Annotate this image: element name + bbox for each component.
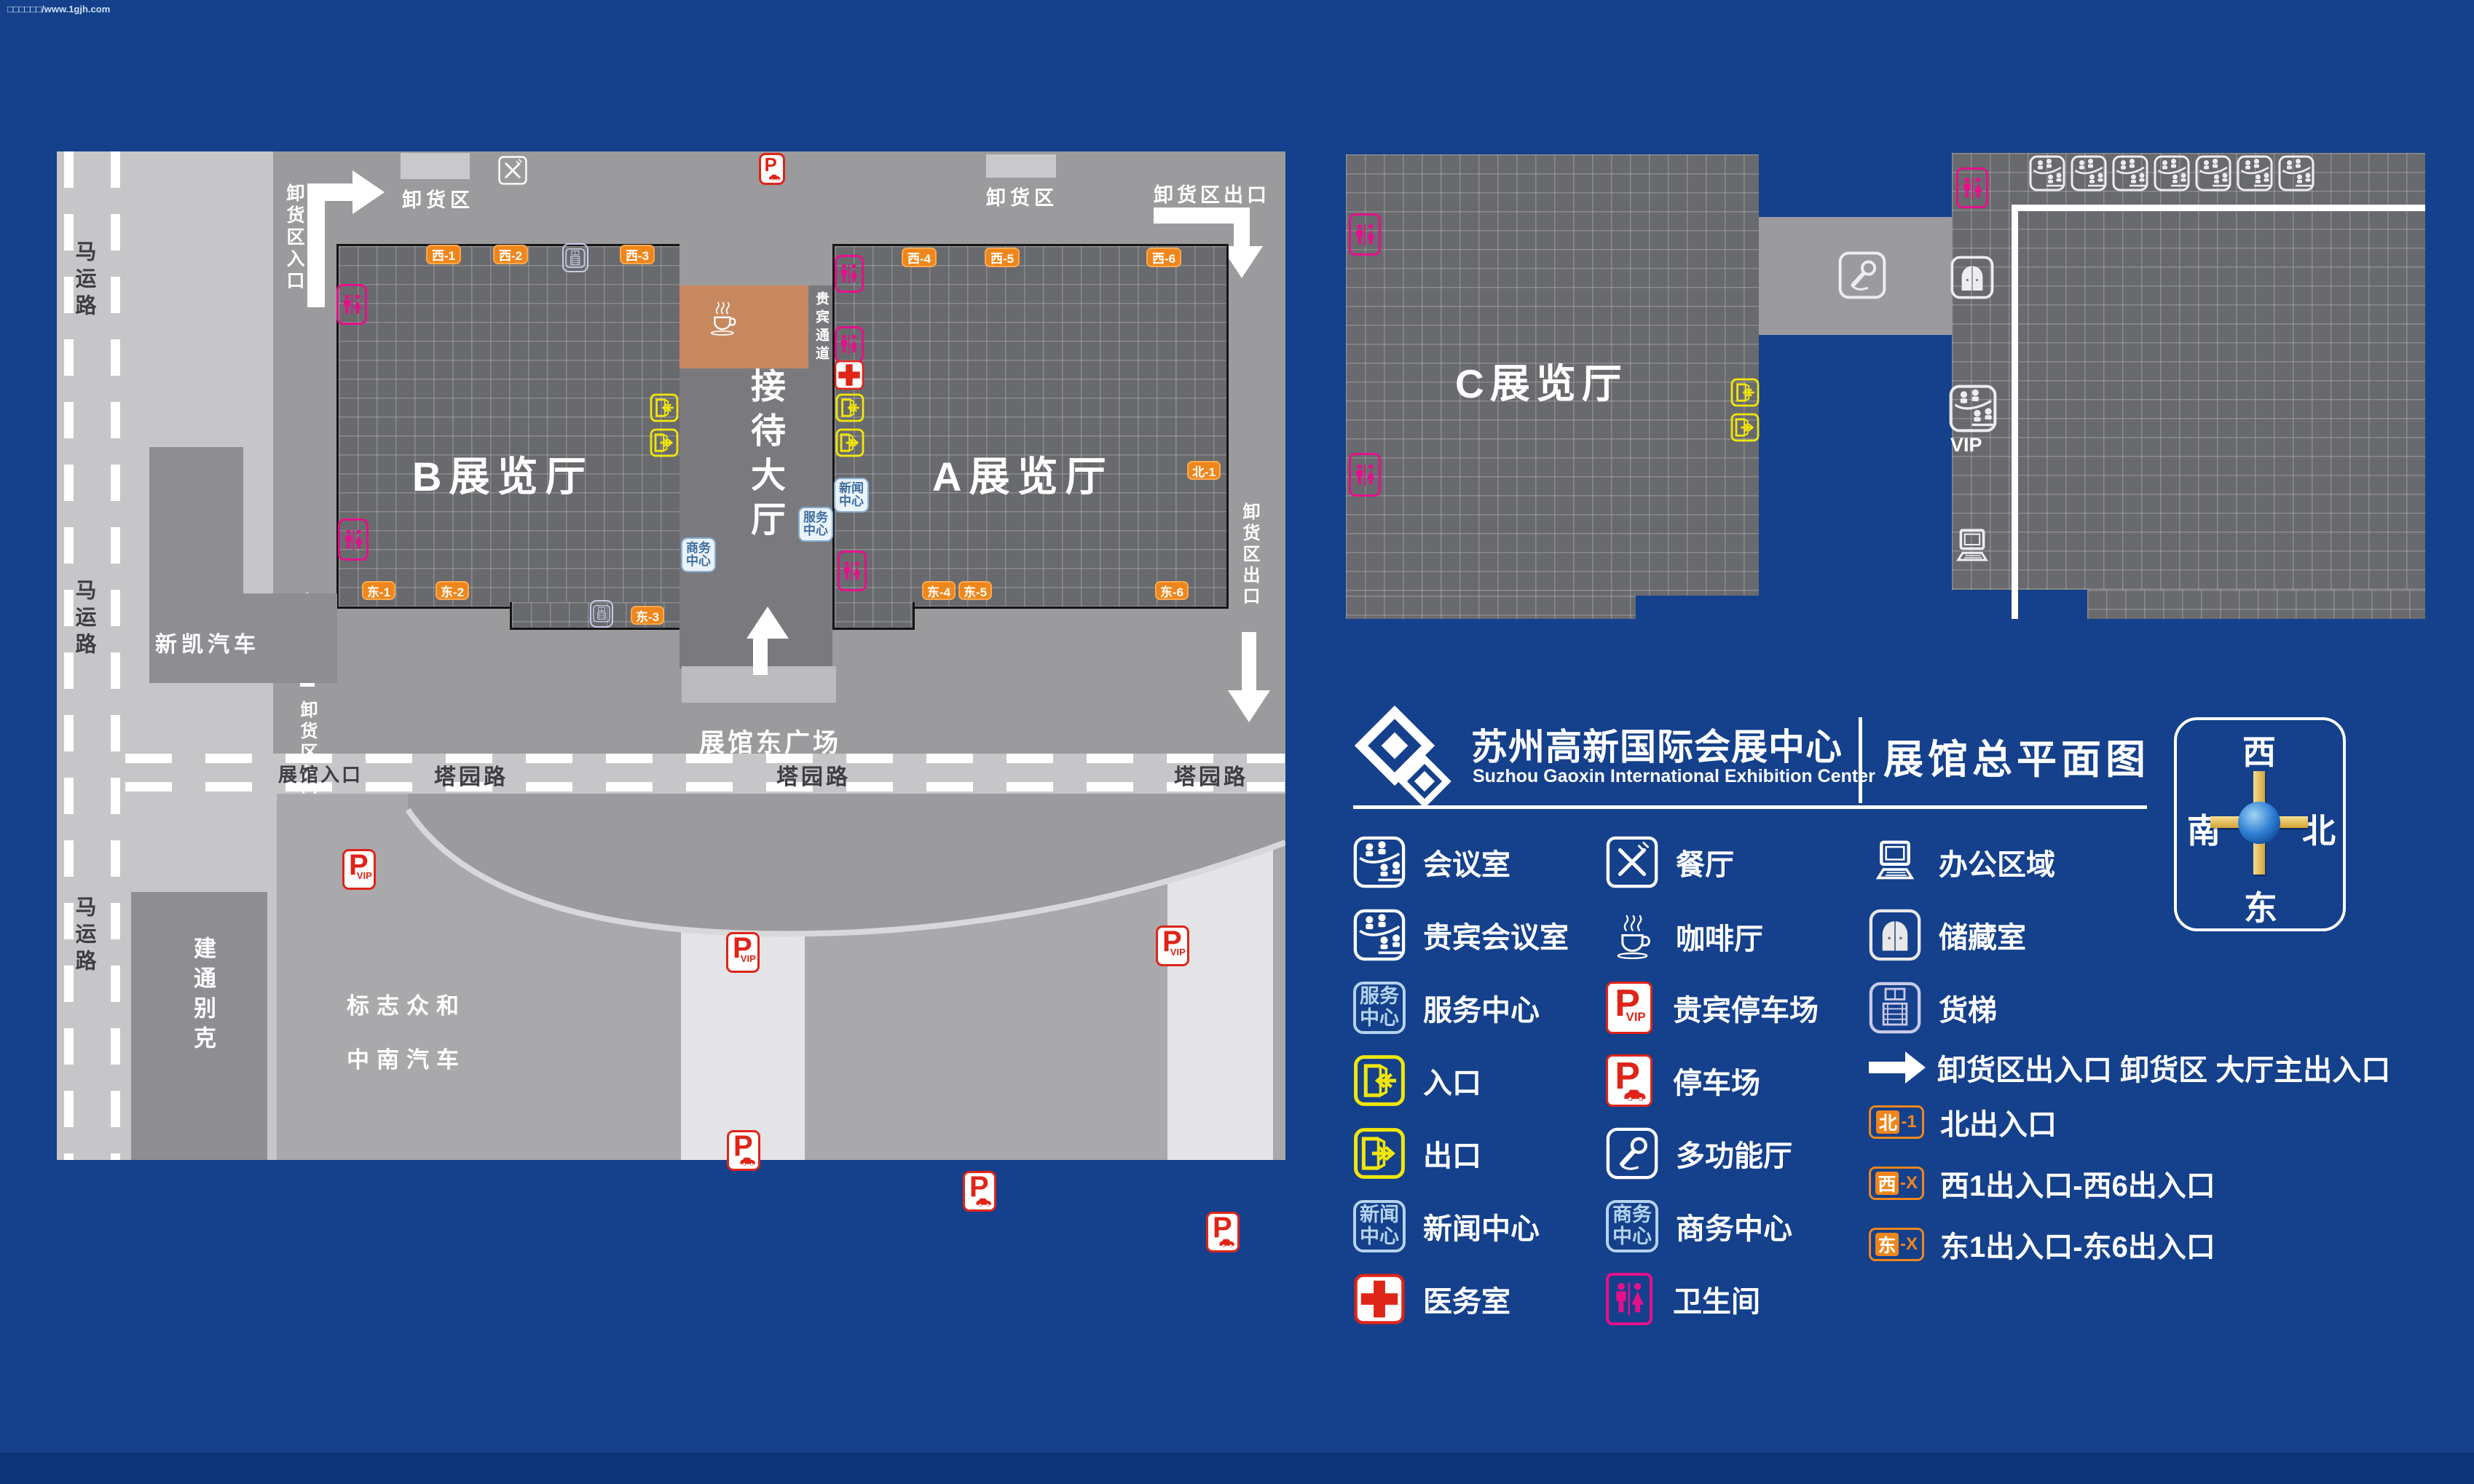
logo (1353, 710, 1459, 818)
vip-passage-label: 贵宾通道 (811, 291, 831, 364)
office-icon (1950, 524, 1994, 569)
conference-icon (2112, 155, 2148, 192)
vip-parking-icon: PVIP (726, 932, 760, 973)
plaza-arrow-head (746, 607, 789, 639)
conference-building-tab (2087, 590, 2425, 619)
legend-item-multifunction: 多功能厅 (1606, 1127, 1792, 1180)
badge-west-4: 西-4 (902, 248, 937, 267)
vip-label: VIP (1950, 434, 1982, 457)
freight-elevator-icon (590, 600, 613, 628)
badge-west-3: 西-3 (620, 245, 655, 264)
legend-item-medical: 医务室 (1353, 1273, 1510, 1325)
compass-west: 西 (2242, 726, 2276, 774)
mayun-road-label: 马运路 (68, 896, 99, 976)
dock-area-label: 卸货区 (986, 182, 1058, 210)
badge-east-1: 东-1 (362, 581, 395, 600)
toilet-icon (1956, 167, 1988, 208)
legend-item-office: 办公区域 (1869, 836, 2055, 888)
mayun-road-dashes (111, 151, 120, 1160)
hall-a-notch (832, 602, 915, 630)
dock-entrance-arrow (307, 183, 325, 307)
legend-item-vip-parking: PVIP 贵宾停车场 (1606, 982, 1819, 1034)
freight-elevator-icon (1869, 982, 1921, 1034)
exit-icon (835, 427, 864, 458)
legend-item-dock-access: 卸货区出入口 卸货区 大厅主出入口 (1869, 1049, 2390, 1086)
vip-parking-icon: PVIP (1606, 982, 1652, 1034)
exit-icon (650, 427, 679, 458)
center-title-en: Suzhou Gaoxin International Exhibition C… (1473, 766, 1875, 787)
legend-item-exit: 出口 (1353, 1127, 1481, 1180)
business-center-icon: 商务中心 (1606, 1200, 1658, 1252)
legend-item-entrance: 入口 (1353, 1054, 1481, 1107)
legend-item-toilet: 卫生间 (1606, 1273, 1760, 1325)
hall-b (336, 244, 686, 609)
toilet-icon (1349, 213, 1381, 256)
dock-exit-arrow-stem (1234, 208, 1250, 250)
compass: 西 南 北 东 (2174, 717, 2346, 931)
tayuan-road-label: 塔园路 (776, 759, 851, 791)
mayun-road-label: 马运路 (68, 240, 99, 321)
legend-item-conference: 会议室 (1353, 836, 1510, 888)
entrance-icon (835, 392, 864, 423)
badge-east-2: 东-2 (436, 581, 469, 600)
badge-east-4: 东-4 (922, 581, 956, 600)
hall-a (832, 244, 1229, 609)
dock-door (401, 153, 470, 179)
legend-item-vip-conference: 贵宾会议室 (1353, 909, 1569, 961)
compass-globe (2238, 802, 2280, 844)
hall-a-label: A展览厅 (932, 444, 1113, 503)
plaza-arrow-stem (753, 637, 768, 675)
reception-top (679, 244, 832, 288)
compass-east: 东 (2244, 882, 2277, 930)
mayun-road-label: 马运路 (68, 579, 99, 660)
parking-icon: P (727, 1130, 760, 1171)
business-center-label: 商务中心 (681, 537, 716, 572)
vip-parking-icon: PVIP (342, 849, 376, 890)
entrance-icon (1353, 1054, 1406, 1107)
badge-north-1: 北-1 (1187, 461, 1221, 480)
exhibition-center-map-poster: □□□□□□/www.1gjh.com 卸货区 卸货区 卸货区入口 卸货区出口 … (0, 0, 2474, 1484)
building-corridor-line (2012, 205, 2018, 619)
badge-east: 东-X (1869, 1228, 1924, 1261)
legend-item-east-gates: 东-X 东1出入口-东6出入口 (1869, 1223, 2215, 1266)
exit-icon (1353, 1127, 1406, 1180)
toilet-icon (1349, 453, 1381, 497)
dock-exit-label: 卸货区出口 (1154, 179, 1270, 208)
hall-c-label: C展览厅 (1455, 351, 1628, 409)
biaozhi-label: 标志众和 (347, 987, 466, 1020)
exit-icon (1730, 412, 1760, 443)
header-rule (1353, 805, 2147, 809)
watermark: □□□□□□/www.1gjh.com (7, 4, 110, 15)
entrance-icon (650, 392, 679, 423)
reception-hall-label: 接待大厅 (738, 368, 789, 545)
hall-b-label: B展览厅 (412, 444, 593, 503)
compass-north: 北 (2302, 805, 2336, 853)
coffee-icon (702, 297, 744, 339)
building-corridor-line (2012, 205, 2425, 211)
xinkai-label: 新凯汽车 (155, 626, 260, 658)
legend-item-storage: 储藏室 (1869, 909, 2026, 961)
tayuan-road-label: 塔园路 (434, 759, 508, 791)
badge-east-6: 东-6 (1155, 581, 1189, 600)
service-center-label: 服务中心 (798, 507, 833, 542)
toilet-icon (1606, 1273, 1652, 1325)
badge-north: 北-1 (1869, 1105, 1924, 1139)
toilet-icon (835, 255, 864, 293)
conference-icon (2237, 155, 2273, 192)
entrance-icon (1730, 377, 1760, 408)
dock-entrance-arrow-bar (307, 183, 354, 201)
vip-conference-icon (1949, 384, 1997, 433)
plaza-drive-arc (277, 794, 1285, 1160)
legend-item-north-gate: 北-1 北出入口 (1869, 1101, 2057, 1143)
center-title-cn: 苏州高新国际会展中心 (1471, 718, 1843, 770)
parking-icon: P (963, 1171, 996, 1212)
map-title: 展馆总平面图 (1883, 727, 2150, 785)
legend-item-freight-elevator: 货梯 (1869, 982, 1997, 1034)
multifunction-icon (1838, 249, 1886, 301)
dock-entrance-arrowhead (352, 170, 385, 214)
storage-icon (1869, 909, 1921, 961)
badge-west: 西-X (1869, 1167, 1924, 1200)
dock-exit-arrowhead (1228, 690, 1270, 722)
zhongnan-label: 中南汽车 (347, 1041, 466, 1074)
conference-icon (2071, 155, 2107, 192)
freight-elevator-icon (562, 243, 588, 272)
coffee-icon (1606, 909, 1661, 964)
vip-parking-icon: PVIP (1156, 925, 1189, 966)
medical-icon (1353, 1273, 1406, 1325)
legend-item-west-gates: 西-X 西1出入口-西6出入口 (1869, 1162, 2215, 1204)
legend-item-business-center: 商务中心 商务中心 (1606, 1200, 1792, 1252)
legend-item-parking: P 停车场 (1606, 1054, 1760, 1107)
dock-door (986, 154, 1056, 178)
parking-icon: P (1206, 1212, 1240, 1252)
service-center-icon: 服务中心 (1353, 982, 1406, 1034)
toilet-icon (835, 326, 864, 363)
parking-icon: P (1606, 1054, 1652, 1107)
restaurant-icon (1606, 836, 1658, 888)
toilet-icon (336, 284, 367, 325)
conference-icon (2029, 155, 2065, 192)
conference-icon (2154, 155, 2190, 192)
news-center-label: 新闻中心 (834, 478, 869, 513)
vip-conference-icon (1353, 909, 1406, 961)
conference-icon (2278, 155, 2315, 192)
arrow-head (1905, 1051, 1926, 1084)
compass-south: 南 (2187, 805, 2221, 853)
conference-icon (2195, 155, 2231, 192)
badge-west-5: 西-5 (985, 248, 1020, 267)
title-divider (1859, 717, 1862, 803)
legend-item-coffee: 咖啡厅 (1606, 909, 1763, 964)
toilet-icon (838, 550, 867, 591)
arrow-right-icon (1869, 1051, 1926, 1084)
site-map: 卸货区 卸货区 卸货区入口 卸货区出口 P B展览厅 A展览厅 贵宾通道 接 (57, 151, 1285, 1160)
storage-icon (1950, 252, 1994, 303)
dock-entrance-label: 卸货区入口 (281, 183, 307, 293)
arrow-bar (1869, 1062, 1905, 1073)
news-center-icon: 新闻中心 (1353, 1200, 1406, 1252)
hall-c-tab (1346, 596, 1636, 619)
badge-west-6: 西-6 (1146, 248, 1181, 267)
medical-icon (833, 360, 865, 390)
badge-west-1: 西-1 (426, 245, 461, 264)
jiantong-label: 建通别克 (186, 936, 219, 1056)
badge-east-5: 东-5 (958, 581, 992, 600)
restaurant-icon (498, 156, 527, 185)
dock-exit-arrow-stem (1242, 632, 1256, 694)
legend-item-service-center: 服务中心 服务中心 (1353, 982, 1540, 1034)
dock-area-label: 卸货区 (402, 184, 474, 213)
parking-icon: P (759, 153, 785, 185)
dock-exit-label: 卸货区出口 (1237, 502, 1262, 608)
conference-building (1952, 153, 2425, 590)
tayuan-road-label: 塔园路 (1174, 759, 1248, 791)
badge-east-3: 东-3 (631, 606, 664, 625)
office-icon (1869, 836, 1921, 888)
badge-west-2: 西-2 (493, 245, 528, 264)
legend-item-news-center: 新闻中心 新闻中心 (1353, 1200, 1540, 1252)
multifunction-icon (1606, 1127, 1658, 1180)
hall-entrance-label: 展馆入口 (278, 760, 363, 787)
toilet-icon (338, 518, 369, 561)
footer-band (0, 1453, 2474, 1484)
conference-icon (1353, 836, 1406, 888)
legend-item-restaurant: 餐厅 (1606, 836, 1734, 888)
